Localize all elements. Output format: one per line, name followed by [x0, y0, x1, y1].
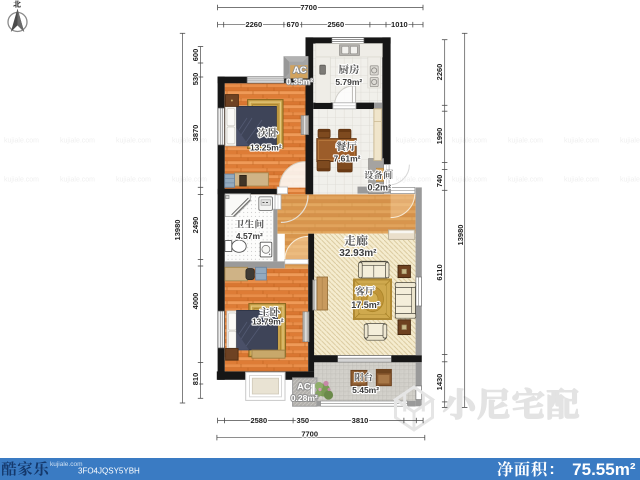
- svg-text:670: 670: [287, 20, 300, 29]
- svg-text:kujiale.com: kujiale.com: [4, 177, 39, 184]
- svg-text:1990: 1990: [435, 128, 444, 145]
- svg-text:kujiale.com: kujiale.com: [620, 177, 640, 184]
- svg-text:0.28m²: 0.28m²: [291, 393, 318, 403]
- svg-text:kujiale.com: kujiale.com: [172, 177, 207, 184]
- svg-text:600: 600: [191, 49, 200, 62]
- svg-text:4.57m²: 4.57m²: [236, 231, 263, 241]
- svg-text:0.35m²: 0.35m²: [286, 77, 313, 87]
- svg-text:530: 530: [191, 73, 200, 86]
- svg-text:kujiale.com: kujiale.com: [452, 138, 487, 145]
- svg-text:2490: 2490: [191, 217, 200, 234]
- svg-text:kujiale.com: kujiale.com: [116, 177, 151, 184]
- svg-text:740: 740: [435, 175, 444, 188]
- svg-text:350: 350: [297, 416, 310, 425]
- svg-text:kujiale.com: kujiale.com: [508, 177, 543, 184]
- svg-text:13980: 13980: [456, 225, 465, 246]
- svg-text::: :: [549, 461, 554, 478]
- svg-text:kujiale.com: kujiale.com: [116, 138, 151, 145]
- svg-text:13.79m²: 13.79m²: [252, 316, 284, 326]
- svg-text:6110: 6110: [435, 264, 444, 280]
- svg-text:0.2m²: 0.2m²: [367, 182, 391, 192]
- svg-text:2580: 2580: [250, 416, 267, 425]
- svg-text:17.5m²: 17.5m²: [351, 300, 380, 310]
- svg-text:2560: 2560: [327, 20, 344, 29]
- svg-text:3810: 3810: [352, 416, 369, 425]
- svg-text:kujiale.com: kujiale.com: [564, 177, 599, 184]
- svg-text:kujiale.com: kujiale.com: [172, 138, 207, 145]
- svg-text:4000: 4000: [191, 293, 200, 310]
- svg-text:32.93m²: 32.93m²: [339, 248, 377, 259]
- svg-text:2260: 2260: [435, 64, 444, 81]
- svg-text:kujiale.com: kujiale.com: [60, 138, 95, 145]
- svg-text:kujiale.com: kujiale.com: [4, 138, 39, 145]
- svg-text:kujiale.com: kujiale.com: [396, 138, 431, 145]
- svg-text:5.79m²: 5.79m²: [335, 77, 362, 87]
- svg-text:75.55m²: 75.55m²: [572, 460, 636, 479]
- svg-text:kujiale.com: kujiale.com: [60, 177, 95, 184]
- svg-text:7700: 7700: [300, 3, 317, 12]
- svg-text:kujiale.com: kujiale.com: [620, 138, 640, 145]
- svg-text:810: 810: [191, 373, 200, 386]
- svg-text:kujiale.com: kujiale.com: [452, 177, 487, 184]
- svg-text:AC: AC: [297, 382, 311, 393]
- svg-text:2260: 2260: [245, 20, 262, 29]
- svg-text:kujiale.com: kujiale.com: [508, 138, 543, 145]
- svg-text:7700: 7700: [301, 429, 318, 438]
- svg-text:5.45m²: 5.45m²: [352, 385, 379, 395]
- svg-text:13.25m²: 13.25m²: [250, 143, 282, 153]
- svg-text:AC: AC: [293, 65, 307, 76]
- svg-text:3870: 3870: [191, 125, 200, 142]
- svg-text:kujiale.com: kujiale.com: [396, 177, 431, 184]
- svg-text:3FO4JQSY5YBH: 3FO4JQSY5YBH: [78, 467, 140, 476]
- svg-text:7.61m²: 7.61m²: [334, 154, 361, 164]
- svg-text:13980: 13980: [173, 220, 182, 241]
- svg-text:kujiale.com: kujiale.com: [564, 138, 599, 145]
- svg-text:1430: 1430: [435, 374, 444, 391]
- svg-text:1010: 1010: [391, 20, 408, 29]
